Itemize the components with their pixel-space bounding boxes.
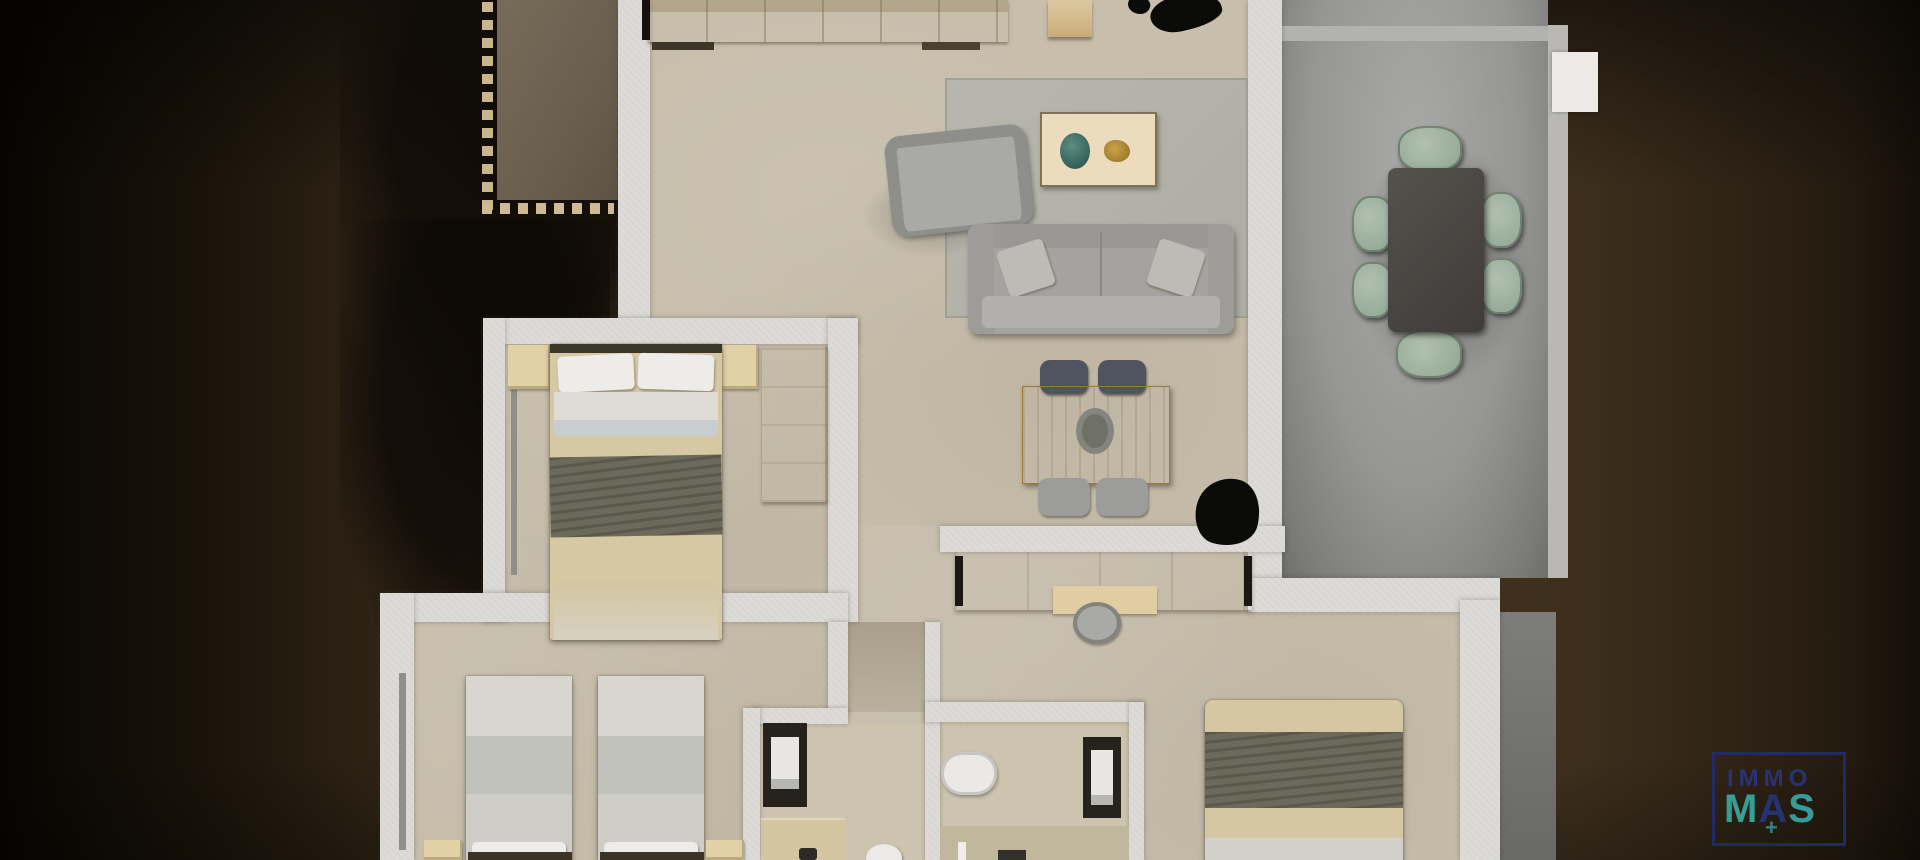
bed-sheet-blue [554, 420, 718, 436]
bed3-sheet-light [1205, 838, 1403, 860]
wall-bathroom2-right [1129, 702, 1144, 860]
desk-chair-bottom-2 [1096, 478, 1148, 516]
kitchen-shelf [1048, 0, 1092, 37]
logo-letter-s: S [1788, 787, 1816, 831]
counter-shadow-left [652, 42, 714, 50]
hallway-doorway-shadow [848, 622, 925, 712]
gold-decor-icon [1104, 140, 1130, 162]
dining-table [1388, 168, 1484, 332]
bed-pillow-right [637, 353, 714, 392]
bed1-sec-mid [466, 736, 572, 794]
wall-bathroom1-top [753, 708, 848, 724]
logo-letter-m: M [1724, 787, 1758, 831]
wall-bedroom-twin-outer [380, 593, 414, 860]
kitchen-counter-edge [642, 0, 650, 40]
balcony-baluster-left [482, 2, 493, 214]
sofa-seat [982, 296, 1220, 328]
faucet-1-icon [799, 848, 817, 860]
nightstand-right [722, 345, 758, 389]
desk-centerpiece [1076, 408, 1114, 454]
shower-2-frame [1083, 737, 1121, 818]
bed-foot-fade [554, 582, 718, 640]
double-bed-right [1205, 700, 1403, 860]
sofa [968, 224, 1234, 334]
twin-headboard-2 [600, 852, 704, 860]
bed1-sec-top [466, 676, 572, 736]
twin-nightstand-left [424, 840, 462, 860]
bed-throw-olive [549, 455, 722, 538]
shower-1-tray [771, 737, 799, 789]
wall-bedroom-right-outer [1460, 600, 1500, 860]
armchair [883, 123, 1035, 238]
single-bed-2 [598, 676, 704, 860]
wall-bedroom-left-right [828, 318, 858, 622]
bathtub-icon [941, 752, 997, 795]
faucet-2-icon [958, 842, 966, 860]
sofa-cushion-split [1100, 232, 1102, 298]
bath-dark-object [998, 850, 1026, 860]
vanity-2-counter [940, 826, 1129, 860]
wall-bathroom1-left [743, 708, 760, 860]
bed2-sec-mid [598, 736, 704, 794]
wardrobe-cap-right [1244, 556, 1252, 606]
immo-mas-logo: IMMO MAS + [1712, 752, 1846, 846]
bed-headboard [550, 344, 722, 353]
twin-nightstand-right [706, 840, 744, 860]
bed2-sec-top [598, 676, 704, 736]
wall-hall-right [925, 622, 940, 860]
bed3-throw-olive [1205, 732, 1403, 808]
wall-bedroom-left-outer [483, 318, 505, 622]
terrace-side-strip [1500, 612, 1556, 860]
wall-bathroom2-top [925, 702, 1144, 722]
wall-hall-left [828, 622, 848, 714]
window-bedroom-left [511, 390, 517, 575]
double-bed-left [550, 344, 722, 640]
wardrobe-left-bedroom [762, 347, 828, 502]
wall-bedroom-left-top [483, 318, 858, 344]
desk-chair-right-bedroom [1073, 602, 1121, 644]
shower-1-frame [763, 723, 807, 807]
wardrobe-cap-left [955, 556, 963, 606]
balcony-floor [497, 0, 618, 200]
shower-2-tray [1091, 750, 1113, 805]
terrace-door-panel [1552, 52, 1598, 112]
counter-shadow-right [922, 42, 980, 50]
nightstand-left [508, 345, 550, 389]
dining-chair-right-1 [1480, 192, 1522, 248]
window-bedroom-twin [399, 673, 406, 850]
dining-chair-bottom [1396, 330, 1462, 378]
balcony-baluster-bottom [482, 203, 614, 214]
wall-living-left [618, 0, 650, 344]
dining-chair-right-2 [1480, 258, 1522, 314]
kitchen-counter [648, 0, 1008, 42]
vase-icon [1060, 133, 1090, 169]
logo-plus-icon: + [1765, 815, 1778, 841]
coffee-table [1040, 112, 1157, 187]
floor-plan-render: IMMO MAS + [0, 0, 1920, 860]
logo-line2: MAS [1724, 789, 1843, 829]
twin-headboard-1 [468, 852, 572, 860]
desk-chair-bottom-1 [1038, 478, 1090, 516]
terrace-top-wall [1282, 26, 1548, 41]
bed-pillow-left [557, 353, 635, 393]
dining-chair-top [1398, 126, 1462, 172]
single-bed-1 [466, 676, 572, 860]
